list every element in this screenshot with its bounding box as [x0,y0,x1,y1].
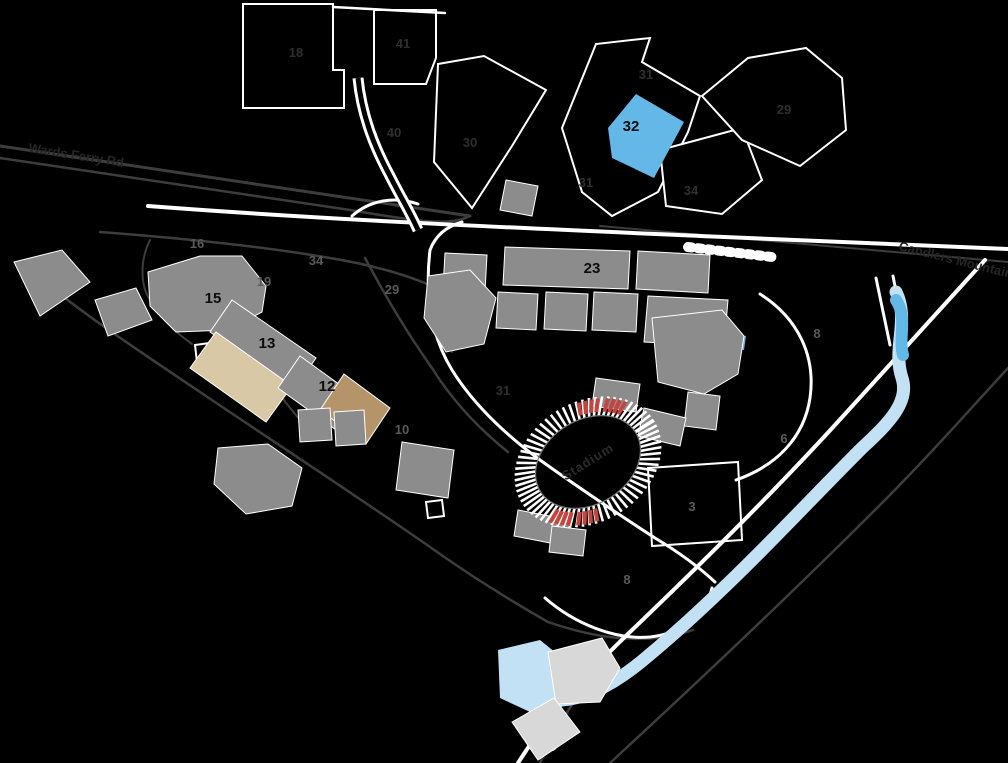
campus-map-canvas: Stadium184140303129313416341929311086381… [0,0,1008,763]
lot-label-40: 40 [387,125,401,140]
lot-label-6: 6 [780,431,787,446]
building [544,292,588,331]
building [549,526,586,556]
building [652,310,744,394]
building [214,444,302,514]
lot-label-19: 19 [257,274,271,289]
building-label-32: 32 [623,118,640,135]
lot-label-18: 18 [289,45,303,60]
lot-label-34: 34 [684,183,699,198]
building [396,442,454,498]
lot-label-8: 8 [813,326,820,341]
stadium-label: Stadium [559,440,616,484]
campus-map: Stadium184140303129313416341929311086381… [0,0,1008,763]
building [592,292,638,332]
building-23 [503,247,630,289]
building [636,251,710,293]
lot-label-29: 29 [777,102,791,117]
lot-label-16: 16 [190,236,204,251]
lot-label-31: 31 [579,175,593,190]
lot-label-30: 30 [463,135,477,150]
building [298,408,332,442]
building-label-15: 15 [205,290,222,307]
building [14,250,90,316]
building-label-23: 23 [584,260,601,277]
lot-label-31: 31 [639,67,653,82]
lot-label-3: 3 [688,499,695,514]
road [0,158,350,210]
building-light-pentagon [548,638,620,704]
lot-label-34: 34 [309,253,324,268]
building [496,292,538,330]
lot-label-41: 41 [396,36,410,51]
building-label-12: 12 [319,378,336,395]
lot-small-b [426,500,444,518]
lot-label-10: 10 [395,422,409,437]
building [95,288,152,336]
river-upper [896,300,903,355]
street-label-west: Wards Ferry Rd [28,140,126,170]
building [684,392,720,430]
lot-label-8: 8 [623,572,630,587]
road-major [148,206,1008,249]
road-major [876,278,890,345]
building-label-13: 13 [259,335,276,352]
road-major [736,294,811,480]
lot-label-31: 31 [496,383,510,398]
lot-label-29: 29 [385,282,399,297]
building [334,410,366,446]
building [500,180,538,216]
